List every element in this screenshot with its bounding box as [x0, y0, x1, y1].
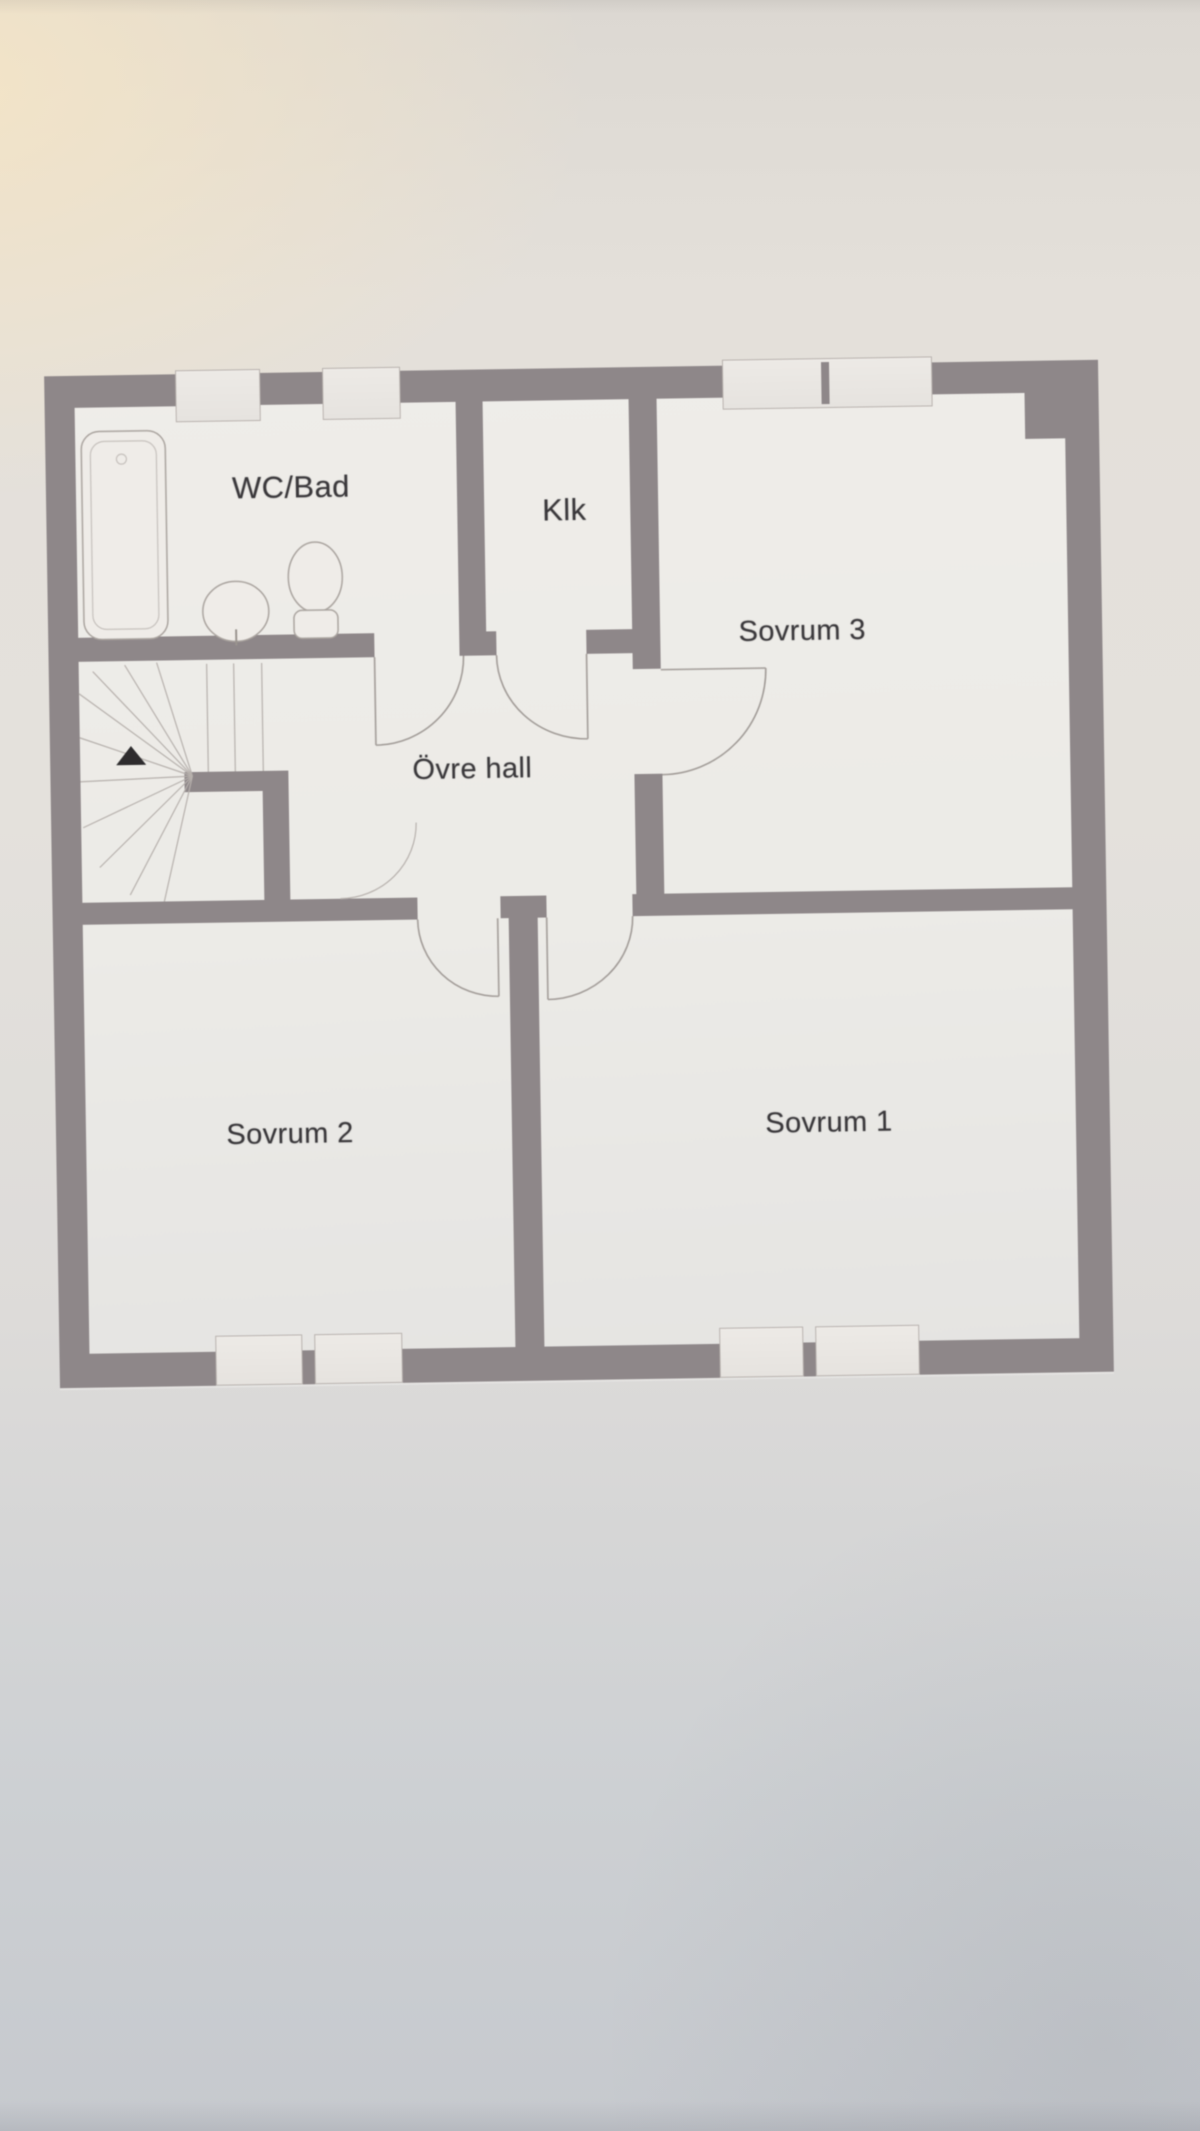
bathtub: [81, 430, 168, 639]
door-swing-arc: [375, 656, 465, 745]
stairs-walk-line: [339, 823, 417, 899]
door-swing-arc: [547, 916, 634, 999]
door-leaf: [661, 668, 766, 670]
toilet: [288, 542, 344, 639]
door-leaf: [587, 654, 588, 739]
stairs-up-arrow-icon: [116, 746, 146, 765]
door-swing-arc: [497, 654, 588, 740]
door-leaf: [375, 657, 376, 745]
window-mullion: [803, 1342, 816, 1376]
plan-linework: [44, 360, 1114, 1390]
door-swing-arc: [661, 668, 768, 775]
door-leaf: [498, 918, 499, 996]
door-leaf: [547, 918, 548, 1000]
floor-plan: WC/Bad Klk Sovrum 3 Övre hall Sovrum 2 S…: [44, 360, 1114, 1390]
window-mullion: [302, 1350, 315, 1384]
window-mullion: [821, 362, 830, 404]
photo-background: WC/Bad Klk Sovrum 3 Övre hall Sovrum 2 S…: [0, 0, 1200, 2131]
stair-treads: [79, 661, 266, 903]
door-swing-arc: [418, 918, 499, 997]
washbasin: [202, 581, 269, 646]
